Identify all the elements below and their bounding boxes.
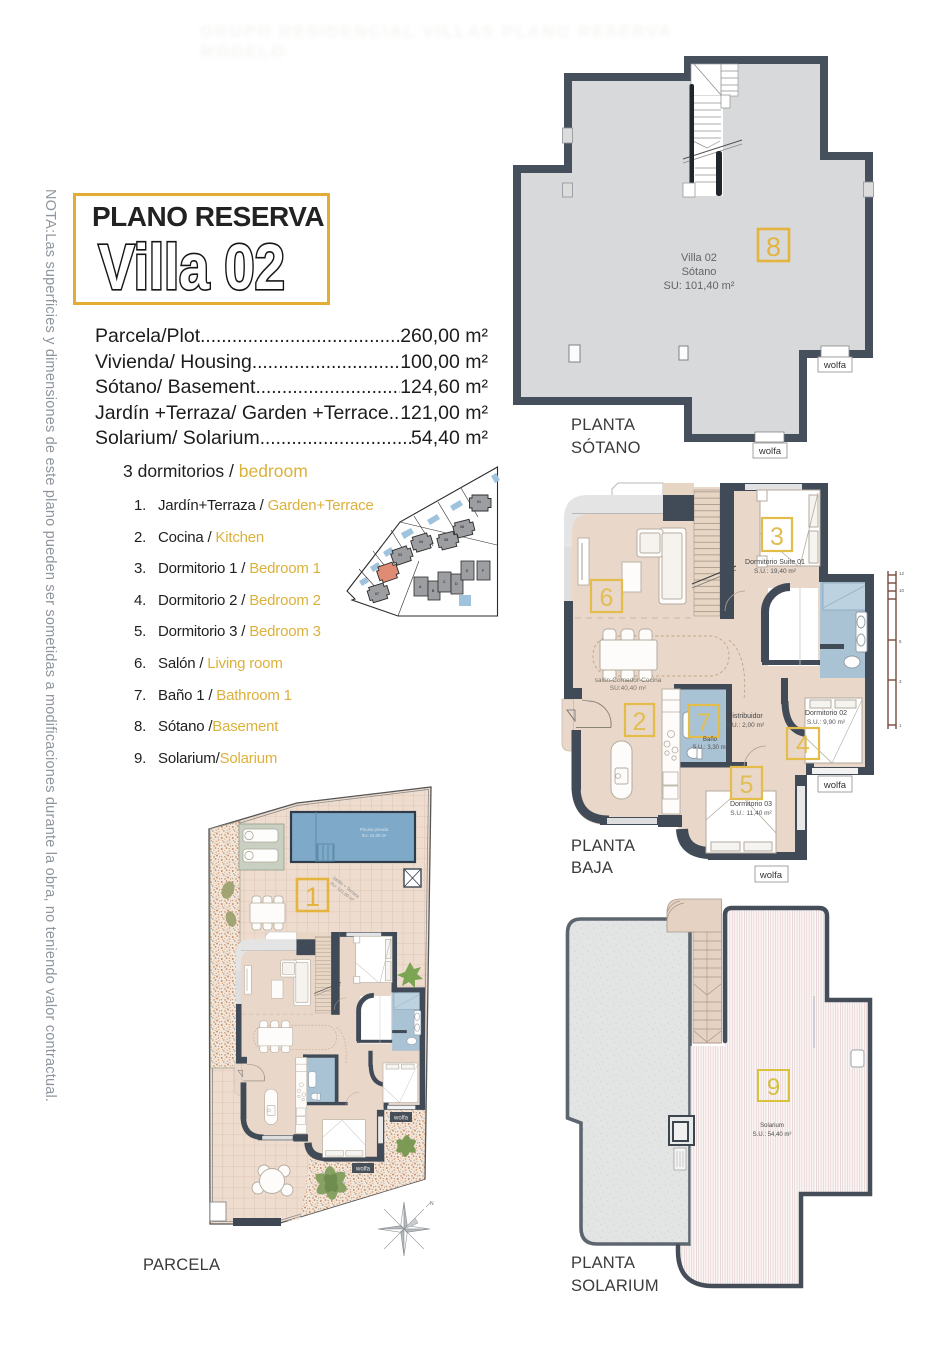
- svg-text:Dormitorio 02: Dormitorio 02: [805, 710, 847, 717]
- svg-text:D: D: [455, 582, 458, 586]
- svg-text:SÓTANO: SÓTANO: [571, 438, 641, 457]
- svg-text:12: 12: [899, 571, 905, 576]
- svg-text:wolfa: wolfa: [758, 446, 782, 457]
- svg-text:N: N: [430, 1201, 434, 1207]
- svg-text:Dormitorio 03: Dormitorio 03: [730, 801, 772, 808]
- svg-text:Piscina privada: Piscina privada: [360, 827, 389, 832]
- svg-text:SU: 24,00 m²: SU: 24,00 m²: [362, 833, 387, 838]
- svg-text:Solarium: Solarium: [760, 1123, 784, 1129]
- svg-text:S.U.: 9,90 m²: S.U.: 9,90 m²: [807, 719, 846, 726]
- svg-text:Villa 02: Villa 02: [681, 252, 717, 264]
- svg-text:5: 5: [740, 771, 754, 799]
- svg-text:S.U.: 54,40 m²: S.U.: 54,40 m²: [753, 1132, 792, 1138]
- svg-text:wolfa: wolfa: [823, 360, 847, 371]
- svg-text:Baño: Baño: [703, 737, 718, 743]
- svg-text:Dormitorio Suite 01: Dormitorio Suite 01: [745, 559, 805, 566]
- svg-text:wolfa: wolfa: [355, 1167, 371, 1173]
- svg-text:03: 03: [398, 553, 402, 557]
- svg-text:Distribuidor: Distribuidor: [727, 713, 763, 720]
- svg-text:9: 9: [767, 1074, 780, 1101]
- svg-text:PARCELA: PARCELA: [143, 1256, 220, 1274]
- svg-text:S.U.: 19,40 m²: S.U.: 19,40 m²: [754, 568, 797, 575]
- svg-text:C: C: [443, 580, 446, 584]
- svg-text:PLANTA: PLANTA: [571, 837, 635, 855]
- svg-text:S.U.: 11,40 m²: S.U.: 11,40 m²: [730, 810, 772, 817]
- svg-text:3: 3: [770, 523, 784, 551]
- svg-text:SU:40,40 m²: SU:40,40 m²: [610, 685, 647, 692]
- svg-text:5: 5: [899, 639, 902, 644]
- svg-text:01: 01: [477, 500, 481, 504]
- svg-text:Sótano: Sótano: [682, 266, 717, 278]
- svg-text:wolfa: wolfa: [759, 870, 783, 881]
- svg-text:10: 10: [899, 588, 905, 593]
- svg-text:PLANTA: PLANTA: [571, 416, 635, 434]
- svg-text:SOLARIUM: SOLARIUM: [571, 1277, 659, 1295]
- svg-text:06: 06: [460, 525, 464, 529]
- svg-text:wolfa: wolfa: [823, 780, 847, 791]
- svg-text:S.U.: 2,00 m²: S.U.: 2,00 m²: [726, 722, 765, 729]
- svg-text:salón-Comedor-Cocina: salón-Comedor-Cocina: [595, 677, 662, 684]
- svg-text:S.U.: 3,30 m²: S.U.: 3,30 m²: [692, 745, 727, 751]
- svg-text:8: 8: [766, 232, 781, 262]
- svg-text:PLANTA: PLANTA: [571, 1254, 635, 1272]
- svg-text:05: 05: [444, 538, 448, 542]
- svg-text:07: 07: [375, 592, 379, 596]
- svg-text:04: 04: [419, 540, 423, 544]
- svg-text:4: 4: [796, 731, 810, 759]
- svg-text:wolfa: wolfa: [393, 1116, 409, 1122]
- svg-text:2: 2: [633, 708, 647, 736]
- svg-text:6: 6: [600, 584, 614, 612]
- svg-text:BAJA: BAJA: [571, 859, 613, 877]
- svg-text:3: 3: [899, 679, 902, 684]
- svg-text:1: 1: [305, 882, 320, 912]
- svg-text:SU: 101,40 m²: SU: 101,40 m²: [664, 280, 735, 292]
- svg-text:Villa 02: Villa 02: [98, 234, 284, 303]
- svg-text:7: 7: [697, 709, 711, 737]
- svg-text:1: 1: [899, 723, 902, 728]
